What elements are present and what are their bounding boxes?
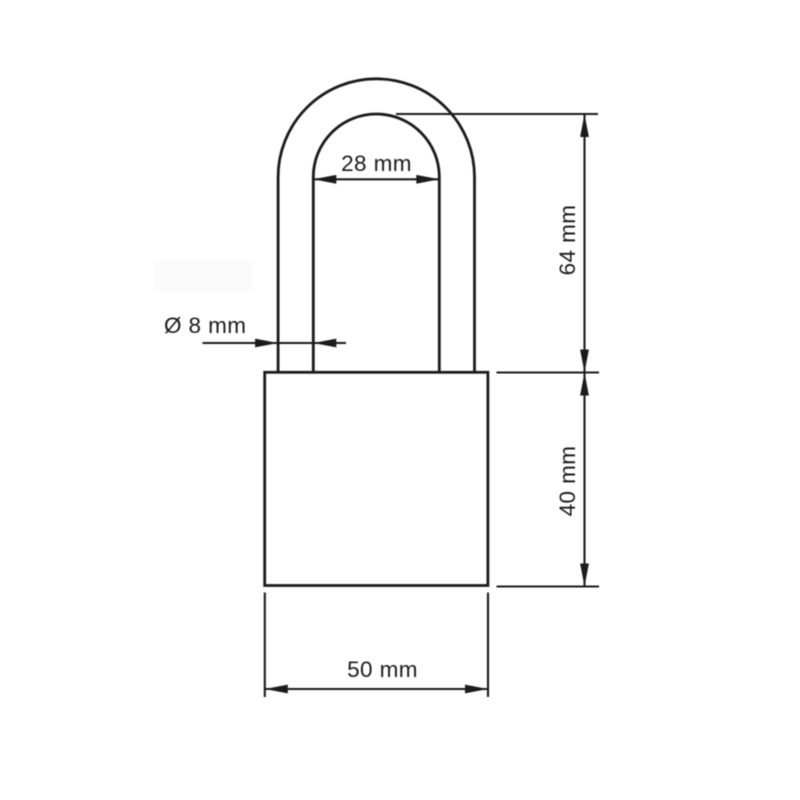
svg-text:64 mm: 64 mm [555, 205, 580, 276]
svg-text:Ø 8 mm: Ø 8 mm [164, 313, 246, 338]
svg-text:50 mm: 50 mm [347, 657, 418, 682]
svg-text:40 mm: 40 mm [555, 446, 580, 517]
svg-text:28 mm: 28 mm [341, 151, 412, 176]
